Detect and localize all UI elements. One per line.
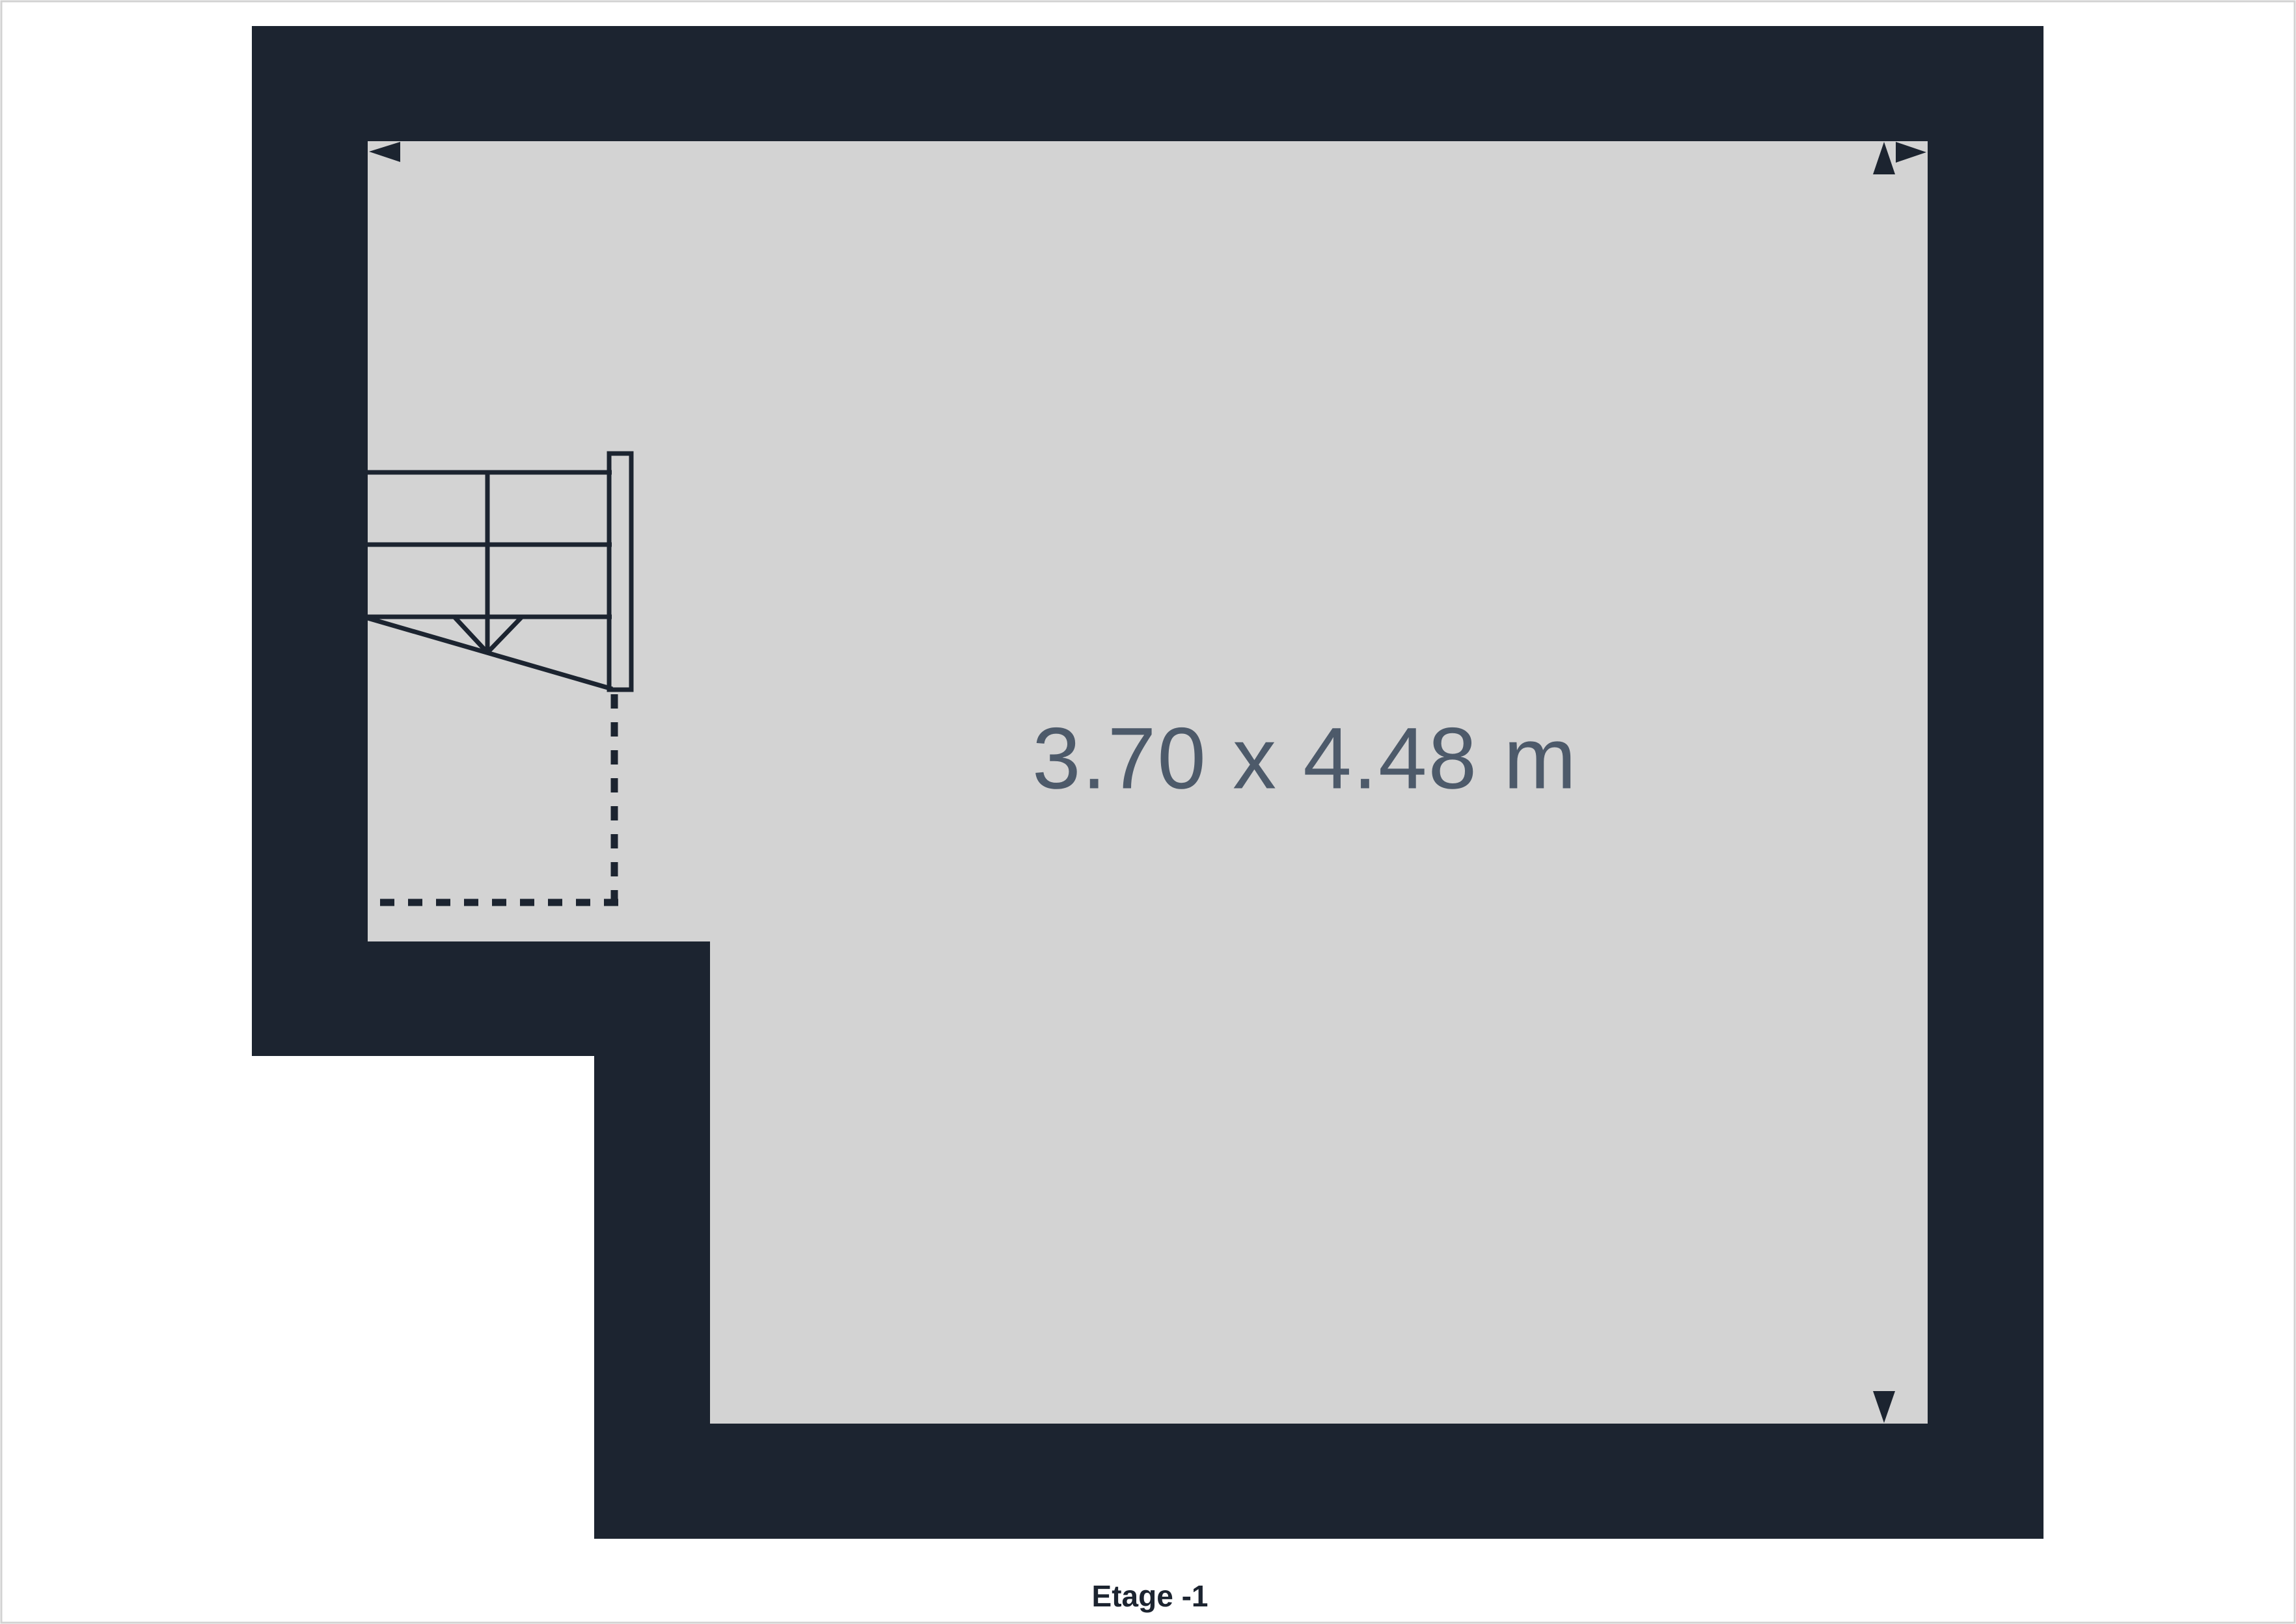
floor-label: Etage -1 (1092, 1578, 1209, 1614)
floor-plan-canvas (0, 0, 2296, 1624)
room-dimension-label: 3.70 x 4.48 m (1032, 709, 1578, 809)
floor-plan-page: 3.70 x 4.48 m Etage -1 (0, 0, 2296, 1624)
